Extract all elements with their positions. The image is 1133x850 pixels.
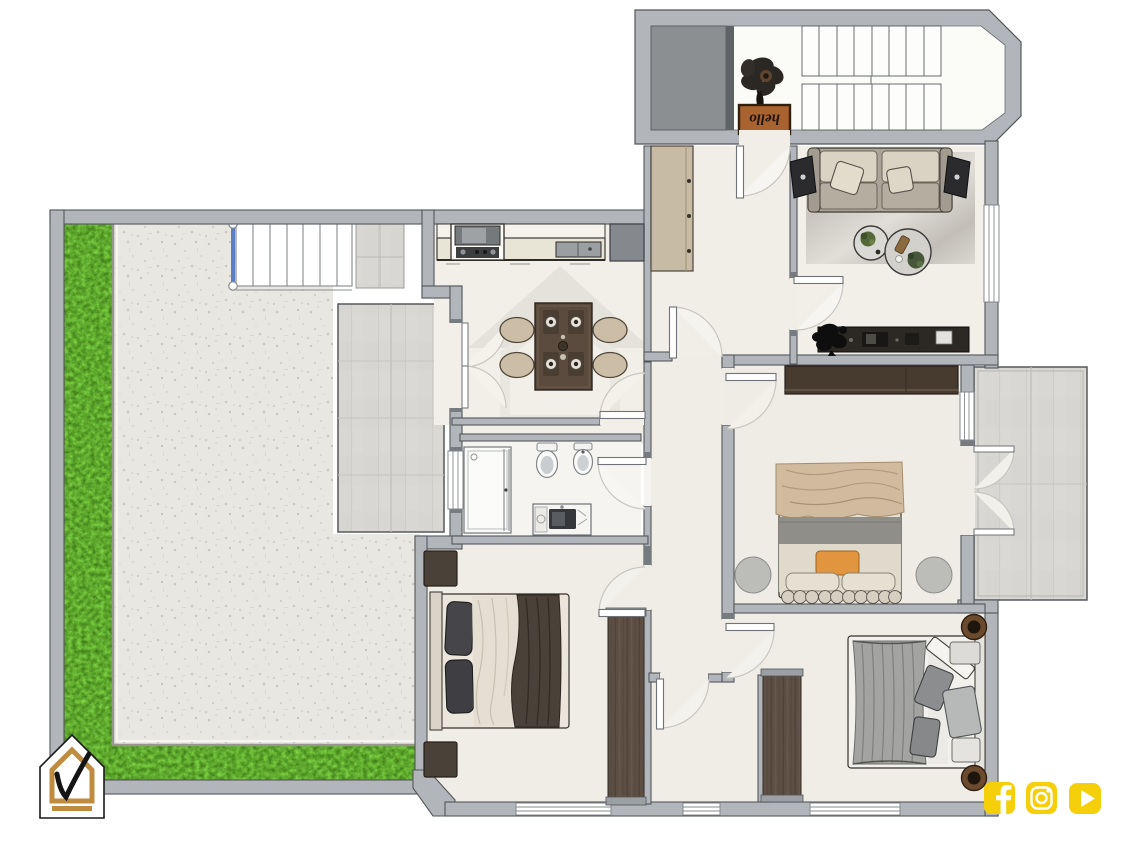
svg-text:hello: hello — [749, 111, 780, 127]
